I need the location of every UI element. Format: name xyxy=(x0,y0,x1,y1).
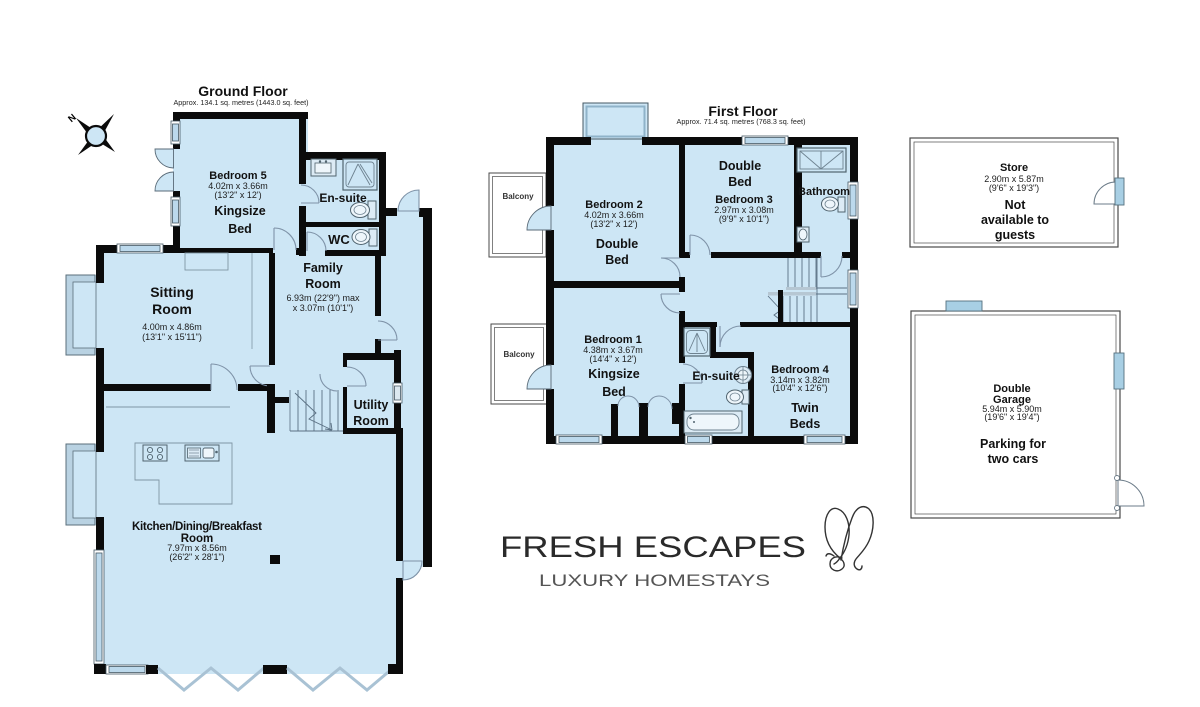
svg-text:Approx. 134.1 sq. metres (1443: Approx. 134.1 sq. metres (1443.0 sq. fee… xyxy=(174,98,309,107)
svg-text:(10'4" x 12'6"): (10'4" x 12'6") xyxy=(772,383,827,393)
svg-text:En-suite: En-suite xyxy=(319,191,367,205)
svg-text:two cars: two cars xyxy=(988,452,1039,466)
svg-text:(13'2" x 12'): (13'2" x 12') xyxy=(214,190,261,200)
svg-text:6.93m (22'9") max: 6.93m (22'9") max xyxy=(287,293,360,303)
svg-text:Bed: Bed xyxy=(228,222,252,236)
svg-text:En-suite: En-suite xyxy=(692,369,740,383)
svg-text:Kingsize: Kingsize xyxy=(214,204,265,218)
svg-text:(26'2" x 28'1"): (26'2" x 28'1") xyxy=(169,552,224,562)
svg-text:Ground Floor: Ground Floor xyxy=(198,83,288,99)
svg-text:Bed: Bed xyxy=(728,175,752,189)
svg-text:Bed: Bed xyxy=(605,253,629,267)
svg-text:Double: Double xyxy=(719,159,761,173)
svg-text:guests: guests xyxy=(995,228,1035,242)
svg-text:Kitchen/Dining/Breakfast: Kitchen/Dining/Breakfast xyxy=(132,521,262,533)
svg-text:Double: Double xyxy=(596,237,638,251)
svg-text:4.00m x 4.86m: 4.00m x 4.86m xyxy=(142,322,202,332)
svg-text:(19'6" x 19'4"): (19'6" x 19'4") xyxy=(984,412,1039,422)
svg-text:(9'6" x 19'3"): (9'6" x 19'3") xyxy=(989,183,1039,193)
svg-text:Room: Room xyxy=(353,414,388,428)
svg-text:Balcony: Balcony xyxy=(502,192,534,201)
svg-text:FRESH ESCAPES: FRESH ESCAPES xyxy=(500,531,806,564)
svg-text:Bed: Bed xyxy=(602,385,626,399)
svg-text:Balcony: Balcony xyxy=(503,350,535,359)
svg-text:Beds: Beds xyxy=(790,417,821,431)
svg-text:available to: available to xyxy=(981,213,1049,227)
svg-text:Store: Store xyxy=(1000,162,1028,174)
svg-text:(9'9" x 10'1"): (9'9" x 10'1") xyxy=(719,214,769,224)
svg-text:Family: Family xyxy=(303,261,343,275)
svg-text:(13'1" x 15'11"): (13'1" x 15'11") xyxy=(142,332,202,342)
svg-text:LUXURY HOMESTAYS: LUXURY HOMESTAYS xyxy=(539,572,770,590)
svg-text:Twin: Twin xyxy=(791,401,819,415)
svg-text:x 3.07m (10'1"): x 3.07m (10'1") xyxy=(293,303,353,313)
svg-text:Parking for: Parking for xyxy=(980,437,1046,451)
svg-text:(14'4" x 12'): (14'4" x 12') xyxy=(589,354,636,364)
svg-text:Approx. 71.4 sq. metres (768.3: Approx. 71.4 sq. metres (768.3 sq. feet) xyxy=(677,117,806,126)
svg-text:Not: Not xyxy=(1005,198,1027,212)
svg-text:Sitting: Sitting xyxy=(150,284,194,300)
svg-text:WC: WC xyxy=(328,232,350,247)
svg-text:Bathroom: Bathroom xyxy=(798,186,850,198)
svg-text:(13'2" x 12'): (13'2" x 12') xyxy=(590,219,637,229)
svg-text:Room: Room xyxy=(152,301,192,317)
svg-text:Room: Room xyxy=(305,277,340,291)
svg-text:Utility: Utility xyxy=(354,398,389,412)
svg-text:Kingsize: Kingsize xyxy=(588,367,639,381)
